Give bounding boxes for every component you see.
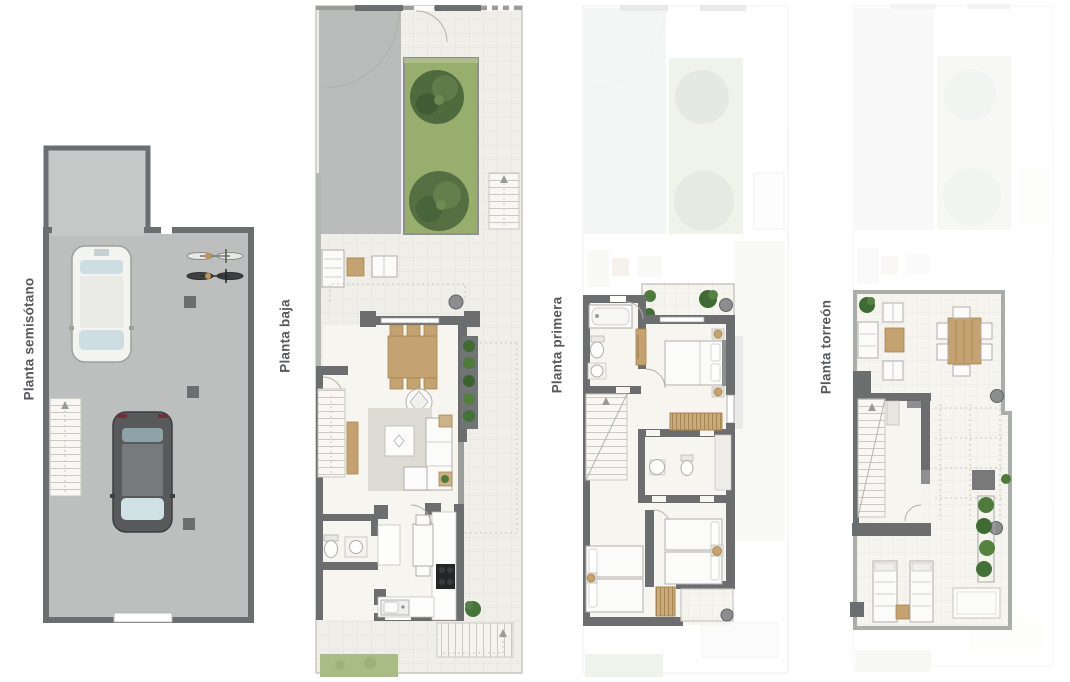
garden xyxy=(404,58,478,234)
lawn-strip xyxy=(320,654,398,677)
patio-plant xyxy=(465,601,481,617)
wardrobe xyxy=(656,587,675,616)
plan-label-semisotano: Planta semisótano xyxy=(22,278,37,401)
wall-block xyxy=(850,602,864,617)
car-white xyxy=(69,246,134,362)
chimney-block xyxy=(972,470,995,490)
tree-icon xyxy=(410,70,464,124)
bedroom-left xyxy=(586,546,643,612)
terrace-room xyxy=(953,588,1000,618)
dining-table xyxy=(388,325,437,389)
plant-icon xyxy=(1001,474,1011,484)
plan-semisotano xyxy=(44,146,254,624)
kitchen-table xyxy=(413,524,433,566)
car-dark xyxy=(110,412,175,532)
floor-plan-sheet: Planta semisótano xyxy=(0,0,1070,682)
garage-door xyxy=(114,613,172,622)
exterior-stairs xyxy=(437,623,513,657)
plan-label-primera: Planta primera xyxy=(550,297,565,394)
terrace-post xyxy=(991,390,1004,403)
plan-torreon xyxy=(845,0,1070,682)
cooktop xyxy=(436,564,455,589)
staircase xyxy=(586,394,627,480)
tree-icon xyxy=(409,171,469,231)
garage-ramp xyxy=(46,148,148,230)
wardrobe xyxy=(670,413,722,430)
stair-enclosure xyxy=(852,371,931,536)
plan-primera xyxy=(580,5,792,675)
staircase xyxy=(50,398,81,496)
porch-column xyxy=(449,295,463,309)
plan-baja xyxy=(315,5,523,675)
plan-label-baja: Planta baja xyxy=(278,299,293,372)
wall-planters xyxy=(461,336,478,429)
side-boundary-wall xyxy=(316,173,321,366)
driveway xyxy=(319,8,401,234)
entrance-stairs xyxy=(489,173,519,229)
plan-label-torreon: Planta torreón xyxy=(819,300,834,394)
bedroom-right xyxy=(665,519,723,584)
coffee-table xyxy=(385,426,414,456)
rear-terrace xyxy=(681,589,733,621)
